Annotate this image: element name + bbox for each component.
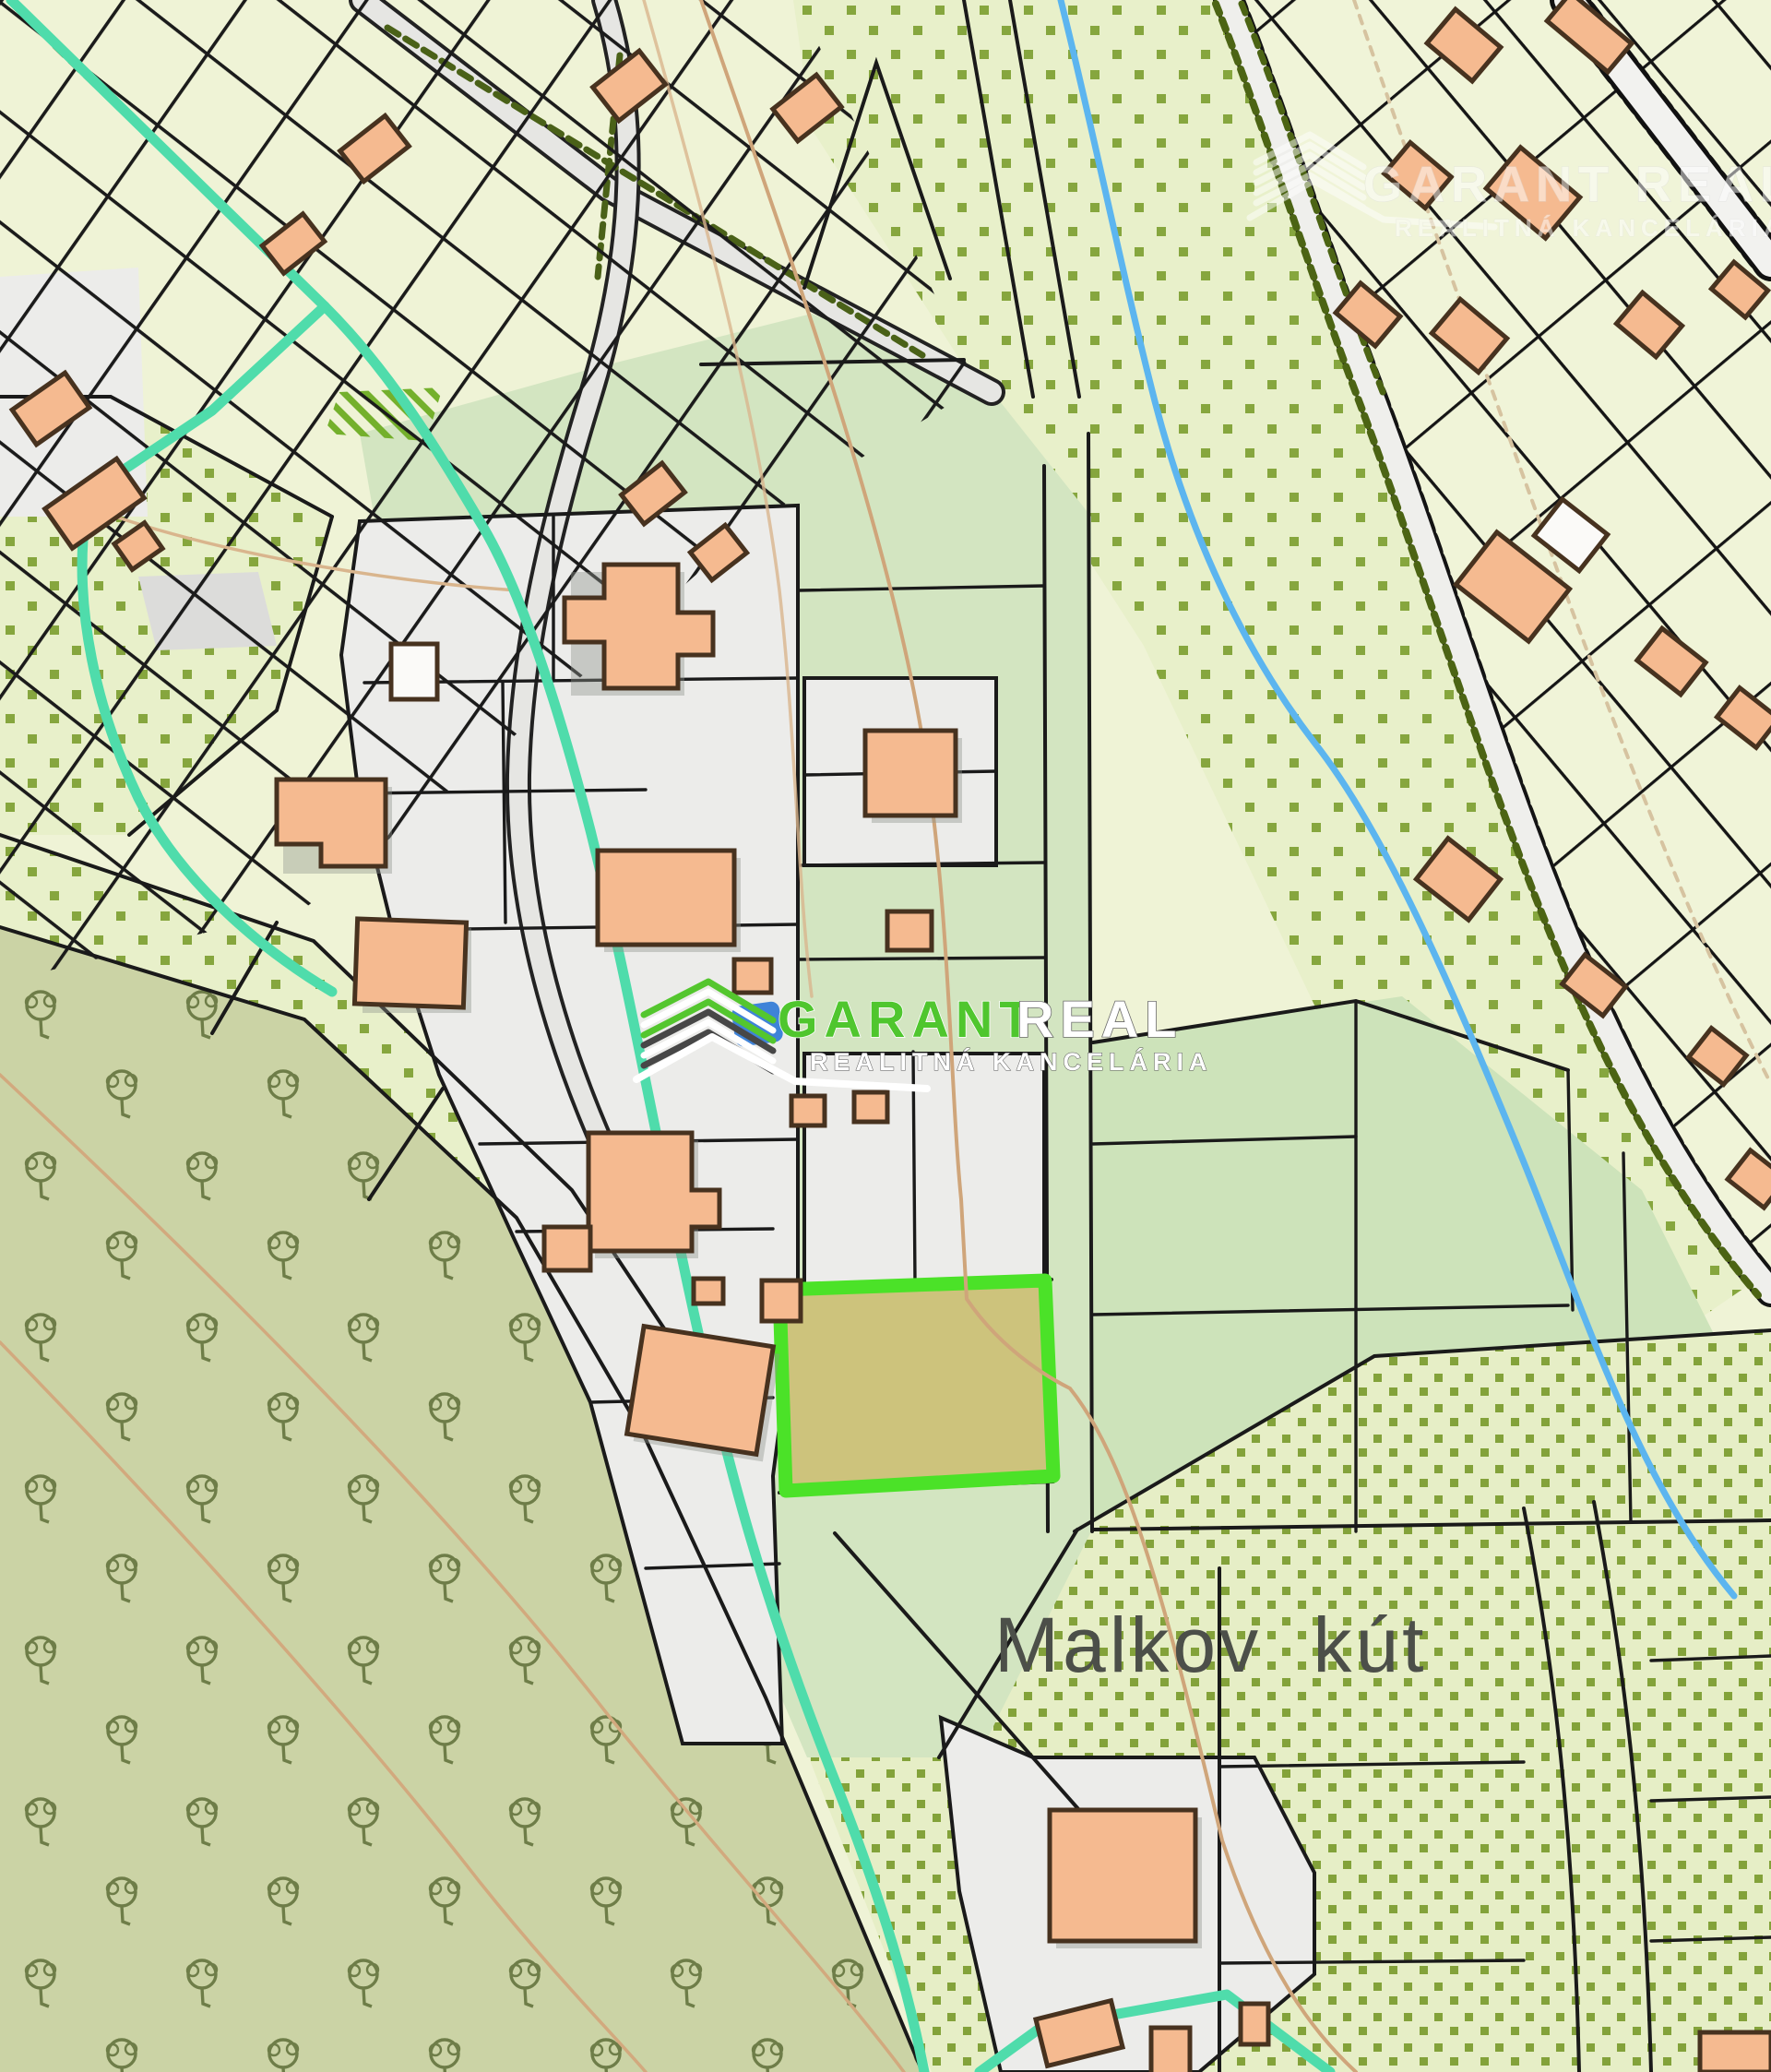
place-label: Malkov kút (994, 1602, 1427, 1688)
watermark-subtitle: REALITNÁ KANCELÁRIA (810, 1047, 1212, 1076)
map-canvas: Malkov kút GARANT REAL REALITNÁ KANCELÁR… (0, 0, 1771, 2072)
building-white-roof (391, 644, 437, 699)
highlighted-parcel (779, 1280, 1053, 1491)
watermark-brand-secondary: REAL (1016, 990, 1183, 1048)
building-bottom-large (1050, 1810, 1195, 1941)
watermark-faint-brand: GARANT REAL (1363, 157, 1771, 212)
watermark-faint-subtitle: REALITNÁ KANCELÁRIA (1395, 214, 1771, 242)
cadastral-map: Malkov kút GARANT REAL REALITNÁ KANCELÁR… (0, 0, 1771, 2072)
watermark-brand-primary: GARANT (778, 990, 1038, 1048)
